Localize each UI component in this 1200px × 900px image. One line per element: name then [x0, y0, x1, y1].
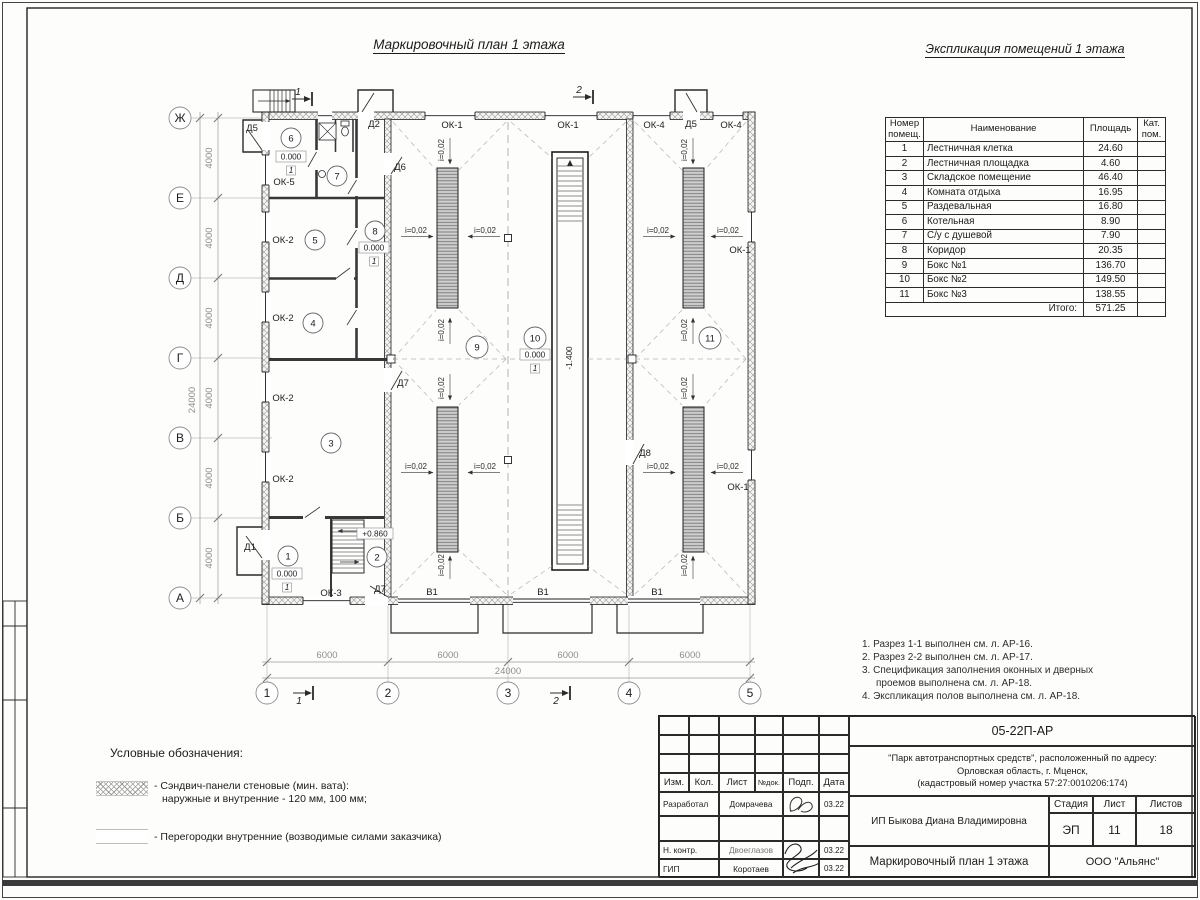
- sheet-edge-band: [3, 880, 1198, 886]
- cell-cat: [1138, 302, 1166, 317]
- gate-aprons: [391, 604, 703, 633]
- level-zero: 0.000: [281, 153, 302, 162]
- axis-row-v: В: [176, 431, 184, 445]
- slope-label: i=0,02: [405, 462, 428, 471]
- axis-col-3: 3: [505, 686, 512, 700]
- tb-date: 03.22: [819, 841, 849, 859]
- tb-date: 03.22: [819, 792, 849, 816]
- cell-name: Лестничная клетка: [924, 142, 1084, 157]
- tb-cell: [783, 816, 819, 841]
- col-header-area: Площадь: [1084, 118, 1138, 142]
- tb-project-line: (кадастровый номер участка 57:27:0010206…: [917, 777, 1127, 790]
- level-stair: +0.860: [362, 530, 388, 539]
- cell-num: 11: [886, 288, 924, 303]
- axis-col-2: 2: [385, 686, 392, 700]
- tb-col-data: Дата: [819, 773, 849, 792]
- floor-type-mark: 1: [372, 257, 377, 266]
- slope-label: i=0,02: [437, 138, 446, 161]
- room-number-7: 7: [334, 172, 339, 183]
- title-block: Изм. Кол. Лист №док. Подп. Дата Разработ…: [658, 715, 1195, 877]
- col-header-cat: Кат. пом.: [1138, 118, 1166, 142]
- legend-text-line: наружные и внутренние - 120 мм, 100 мм;: [154, 793, 367, 806]
- axis-col-5: 5: [747, 686, 754, 700]
- notes-list: 1. Разрез 1-1 выполнен см. л. АР-16. 2. …: [862, 638, 1117, 703]
- cell-area: 136.70: [1084, 259, 1138, 274]
- cell-name: С/у с душевой: [924, 229, 1084, 244]
- dim-6000: 6000: [679, 650, 700, 661]
- cell-num: 5: [886, 200, 924, 215]
- table-row: 3Складское помещение46.40: [886, 171, 1166, 186]
- toilet-tank: [341, 121, 349, 126]
- slope-label: i=0,02: [437, 376, 446, 399]
- dim-4000: 4000: [204, 227, 215, 248]
- total-label: Итого:: [886, 302, 1084, 317]
- tb-cell: [719, 754, 755, 773]
- dim-24000-h: 24000: [495, 666, 521, 677]
- slope-label: i=0,02: [647, 226, 670, 235]
- axis-row-a: А: [176, 591, 184, 605]
- section-mark-2: 2: [575, 85, 582, 96]
- slope-label: i=0,02: [717, 226, 740, 235]
- level-zero: 0.000: [525, 351, 546, 360]
- tb-doc-code: 05-22П-АР: [849, 716, 1196, 746]
- axis-row-e: Е: [176, 191, 184, 205]
- dim-6000: 6000: [557, 650, 578, 661]
- table-row: 5Раздевальная16.80: [886, 200, 1166, 215]
- legend-swatch-sandwich-panel: [96, 781, 148, 796]
- slope-label: i=0,02: [680, 138, 689, 161]
- gate-mark-v1: В1: [537, 587, 549, 598]
- tb-client: ИП Быкова Диана Владимировна: [849, 796, 1049, 846]
- level-zero: 0.000: [277, 570, 298, 579]
- axis-row-d: Д: [176, 271, 184, 285]
- col-header-num: Номер помещ.: [886, 118, 924, 142]
- legend-item-partition: - Перегородки внутренние (возводимые сил…: [154, 831, 442, 843]
- porch-d2: [358, 90, 393, 112]
- tb-cell: [819, 716, 849, 735]
- cell-area: 16.80: [1084, 200, 1138, 215]
- table-row: 8Коридор20.35: [886, 244, 1166, 259]
- tb-cell: [689, 716, 719, 735]
- room-number-8: 8: [372, 227, 377, 238]
- drawing-sheet: 4000 4000 4000 4000 4000 4000 24000 6000…: [0, 0, 1200, 900]
- tb-cell: [819, 816, 849, 841]
- slope-label: i=0,02: [680, 553, 689, 576]
- cell-name: Раздевальная: [924, 200, 1084, 215]
- cell-area: 16.95: [1084, 186, 1138, 201]
- note-item: 3. Спецификация заполнения оконных и две…: [862, 664, 1117, 690]
- tb-project-line: Орловская область, г. Мценск,: [957, 765, 1088, 778]
- cell-area: 8.90: [1084, 215, 1138, 230]
- room-number-6: 6: [288, 134, 293, 145]
- tb-name-gip: Коротаев: [719, 859, 783, 878]
- tb-project: "Парк автотранспортных средств", располо…: [849, 746, 1196, 796]
- exterior-stair: [253, 90, 295, 112]
- cell-name: Складское помещение: [924, 171, 1084, 186]
- cell-cat: [1138, 215, 1166, 230]
- cell-cat: [1138, 142, 1166, 157]
- tb-sign-cell: [783, 841, 819, 859]
- cell-cat: [1138, 244, 1166, 259]
- cell-num: 6: [886, 215, 924, 230]
- tb-col-list: Лист: [719, 773, 755, 792]
- tb-sign-cell: [783, 859, 819, 878]
- section-mark-1: 1: [295, 87, 301, 98]
- axis-col-4: 4: [626, 686, 633, 700]
- window-mark-ok2: ОК-2: [272, 474, 293, 485]
- tb-cell: [659, 735, 689, 754]
- tb-cell: [819, 735, 849, 754]
- table-row: 11Бокс №3138.55: [886, 288, 1166, 303]
- tb-sheet-label: Лист: [1093, 796, 1136, 813]
- total-value: 571.25: [1084, 302, 1138, 317]
- cell-cat: [1138, 200, 1166, 215]
- cell-cat: [1138, 288, 1166, 303]
- explication-header-row: Номер помещ. Наименование Площадь Кат. п…: [886, 118, 1166, 142]
- tb-col-podp: Подп.: [783, 773, 819, 792]
- gate-mark-v1: В1: [426, 587, 438, 598]
- window-mark-ok5: ОК-5: [273, 177, 294, 188]
- level-marks: 0.000 0.000 0.000 0.000 +0.860 -1.400 1 …: [272, 151, 574, 592]
- tb-stage-value: ЭП: [1049, 813, 1093, 846]
- table-row: 7С/у с душевой7.90: [886, 229, 1166, 244]
- tb-cell: [719, 735, 755, 754]
- exterior-structures: [237, 90, 707, 633]
- cell-num: 2: [886, 156, 924, 171]
- tb-cell: [719, 816, 783, 841]
- cell-name: Бокс №3: [924, 288, 1084, 303]
- door-mark-d5: Д5: [246, 123, 258, 134]
- window-mark-ok1: ОК-1: [441, 120, 462, 131]
- tb-cell: [689, 735, 719, 754]
- plan-title: Маркировочный план 1 этажа: [329, 37, 609, 52]
- tb-cell: [755, 735, 783, 754]
- axis-bubbles: Ж Е Д Г В Б А 1 2 3 4 5: [169, 107, 761, 704]
- cell-name: Лестничная площадка: [924, 156, 1084, 171]
- cell-area: 4.60: [1084, 156, 1138, 171]
- tb-sheet-value: 11: [1093, 813, 1136, 846]
- tb-sheets-value: 18: [1136, 813, 1196, 846]
- window-mark-ok1: ОК-1: [727, 482, 748, 493]
- tb-cell: [783, 716, 819, 735]
- window-mark-ok1: ОК-1: [557, 120, 578, 131]
- legend-text-line: - Сэндвич-панели стеновые (мин. вата):: [154, 780, 367, 793]
- tb-cell: [783, 754, 819, 773]
- tb-role-ncontr: Н. контр.: [659, 841, 719, 859]
- tb-cell: [689, 754, 719, 773]
- cell-num: 10: [886, 273, 924, 288]
- cell-num: 8: [886, 244, 924, 259]
- cell-area: 138.55: [1084, 288, 1138, 303]
- cell-num: 3: [886, 171, 924, 186]
- tb-role-razrabotal: Разработал: [659, 792, 719, 816]
- dim-24000-v: 24000: [187, 387, 198, 413]
- slope-label: i=0,02: [474, 226, 497, 235]
- tb-stage-label: Стадия: [1049, 796, 1093, 813]
- axis-row-g: Г: [177, 351, 184, 365]
- toilet-bowl: [342, 127, 349, 136]
- cell-cat: [1138, 186, 1166, 201]
- tb-sheets-label: Листов: [1136, 796, 1196, 813]
- partitions: [269, 119, 391, 597]
- window-mark-ok3: ОК-3: [320, 588, 341, 599]
- tb-cell: [755, 754, 783, 773]
- cell-area: 20.35: [1084, 244, 1138, 259]
- level-zero: 0.000: [364, 244, 385, 253]
- walls: [246, 93, 756, 606]
- tb-name-ncontr: Двоеглазов: [719, 841, 783, 859]
- legend-swatch-partition: [96, 829, 148, 844]
- room-number-4: 4: [310, 319, 315, 330]
- gate-mark-v1: В1: [651, 587, 663, 598]
- cell-cat: [1138, 273, 1166, 288]
- col-header-name: Наименование: [924, 118, 1084, 142]
- cell-num: 7: [886, 229, 924, 244]
- tb-cell: [659, 816, 719, 841]
- total-row: Итого: 571.25: [886, 302, 1166, 317]
- tb-role-gip: ГИП: [659, 859, 719, 878]
- tb-cell: [783, 735, 819, 754]
- slope-label: i=0,02: [474, 462, 497, 471]
- note-item: 4. Экспликация полов выполнена см. л. АР…: [862, 690, 1117, 703]
- cell-area: 149.50: [1084, 273, 1138, 288]
- cell-area: 24.60: [1084, 142, 1138, 157]
- partition-door-leaves: [305, 152, 357, 518]
- slope-label: i=0,02: [717, 462, 740, 471]
- tb-name-razrabotal: Домрачева: [719, 792, 783, 816]
- table-row: 6Котельная8.90: [886, 215, 1166, 230]
- floor-drain: [319, 171, 326, 178]
- door-mark-d8: Д8: [639, 448, 651, 459]
- table-row: 2Лестничная площадка4.60: [886, 156, 1166, 171]
- cell-cat: [1138, 171, 1166, 186]
- legend-item-sandwich-panel: - Сэндвич-панели стеновые (мин. вата): н…: [154, 780, 367, 805]
- slope-label: i=0,02: [647, 462, 670, 471]
- door-mark-d5: Д5: [685, 119, 697, 130]
- tb-col-kol: Кол.: [689, 773, 719, 792]
- cell-num: 4: [886, 186, 924, 201]
- room-number-5: 5: [312, 236, 317, 247]
- dim-4000: 4000: [204, 147, 215, 168]
- cell-name: Бокс №2: [924, 273, 1084, 288]
- tb-sheet-title: Маркировочный план 1 этажа: [849, 846, 1049, 878]
- slope-label: i=0,02: [405, 226, 428, 235]
- floor-type-mark: 1: [285, 583, 290, 592]
- tb-project-line: "Парк автотранспортных средств", располо…: [888, 752, 1157, 765]
- table-row: 1Лестничная клетка24.60: [886, 142, 1166, 157]
- slope-label: i=0,02: [680, 318, 689, 341]
- axis-row-zh: Ж: [174, 111, 185, 125]
- cell-cat: [1138, 259, 1166, 274]
- slope-label: i=0,02: [680, 376, 689, 399]
- cell-num: 9: [886, 259, 924, 274]
- room-number-2: 2: [374, 553, 379, 564]
- room-number-10: 10: [530, 334, 541, 345]
- section-mark-2: 2: [552, 696, 559, 707]
- table-row: 9Бокс №1136.70: [886, 259, 1166, 274]
- room-number-1: 1: [285, 552, 290, 563]
- window-mark-ok1: ОК-1: [729, 245, 750, 256]
- table-row: 4Комната отдыха16.95: [886, 186, 1166, 201]
- slope-label: i=0,02: [437, 553, 446, 576]
- room-number-3: 3: [328, 439, 333, 450]
- room-number-9: 9: [474, 343, 479, 354]
- dim-4000: 4000: [204, 547, 215, 568]
- tb-cell: [719, 716, 755, 735]
- cell-name: Коридор: [924, 244, 1084, 259]
- tb-cell: [819, 754, 849, 773]
- room-number-11: 11: [705, 334, 715, 345]
- explication-table: Номер помещ. Наименование Площадь Кат. п…: [885, 117, 1166, 317]
- table-row: 10Бокс №2149.50: [886, 273, 1166, 288]
- dim-4000: 4000: [204, 387, 215, 408]
- cell-name: Комната отдыха: [924, 186, 1084, 201]
- window-mark-ok4: ОК-4: [720, 120, 741, 131]
- tb-cell: [755, 716, 783, 735]
- note-item: 2. Разрез 2-2 выполнен см. л. АР-17.: [862, 651, 1117, 664]
- note-item: 1. Разрез 1-1 выполнен см. л. АР-16.: [862, 638, 1117, 651]
- door-mark-d7: Д7: [374, 584, 386, 595]
- level-pit: -1.400: [565, 346, 574, 370]
- door-mark-d2: Д2: [368, 119, 380, 130]
- window-mark-ok4: ОК-4: [643, 120, 664, 131]
- floor-type-mark: 1: [289, 166, 294, 175]
- cell-area: 46.40: [1084, 171, 1138, 186]
- slope-label: i=0,02: [437, 318, 446, 341]
- cell-cat: [1138, 229, 1166, 244]
- dim-6000: 6000: [316, 650, 337, 661]
- section-mark-1: 1: [296, 696, 302, 707]
- tb-date: 03.22: [819, 859, 849, 878]
- cell-area: 7.90: [1084, 229, 1138, 244]
- explication-title: Экспликация помещений 1 этажа: [885, 42, 1165, 56]
- door-mark-d6: Д6: [394, 162, 406, 173]
- door-mark-d1: Д1: [244, 542, 256, 553]
- tb-cell: [659, 754, 689, 773]
- window-mark-ok2: ОК-2: [272, 235, 293, 246]
- door-mark-d7: Д7: [397, 378, 409, 389]
- cell-cat: [1138, 156, 1166, 171]
- room-numbers: 1 2 3 4 5 6 7 8 9 10 11: [278, 128, 721, 567]
- tb-company: ООО "Альянс": [1049, 846, 1196, 878]
- window-mark-ok2: ОК-2: [272, 313, 293, 324]
- cell-name: Бокс №1: [924, 259, 1084, 274]
- tb-col-izm: Изм.: [659, 773, 689, 792]
- window-mark-ok2: ОК-2: [272, 393, 293, 404]
- axis-row-b: Б: [176, 511, 184, 525]
- dim-4000: 4000: [204, 307, 215, 328]
- side-stamp: [3, 601, 27, 877]
- cell-num: 1: [886, 142, 924, 157]
- dim-6000: 6000: [437, 650, 458, 661]
- floor-type-mark: 1: [533, 364, 538, 373]
- cell-name: Котельная: [924, 215, 1084, 230]
- dim-4000: 4000: [204, 467, 215, 488]
- wall-markers: [387, 235, 636, 464]
- tb-sign-cell: [783, 792, 819, 816]
- axis-col-1: 1: [264, 686, 271, 700]
- legend-title: Условные обозначения:: [110, 746, 243, 760]
- tb-cell: [659, 716, 689, 735]
- tb-col-ndok: №док.: [755, 773, 783, 792]
